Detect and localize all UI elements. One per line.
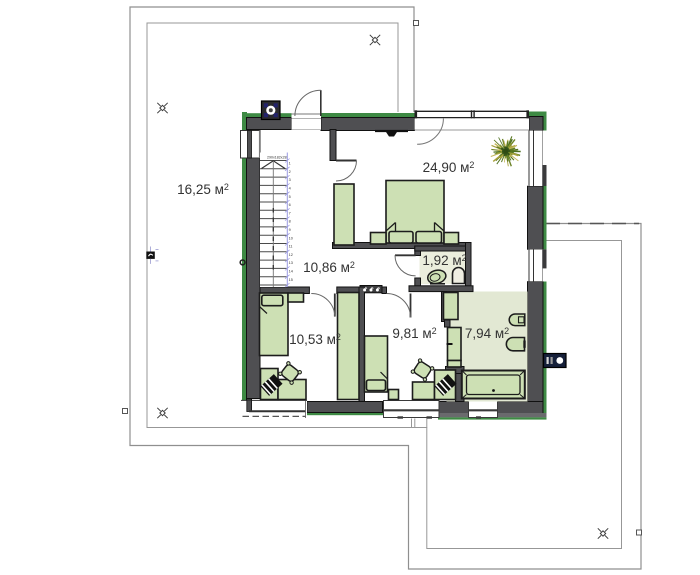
svg-text:8: 8 [289, 220, 291, 224]
svg-text:7,94 м2: 7,94 м2 [465, 326, 509, 341]
svg-text:1: 1 [289, 162, 291, 166]
svg-text:16,25 м2: 16,25 м2 [177, 182, 229, 197]
svg-text:9: 9 [289, 228, 291, 232]
svg-text:14: 14 [289, 270, 293, 274]
svg-text:4: 4 [289, 187, 291, 191]
svg-text:15: 15 [289, 278, 293, 282]
svg-text:10,86 м2: 10,86 м2 [303, 260, 355, 275]
svg-text:6: 6 [289, 203, 291, 207]
svg-text:1,92 м2: 1,92 м2 [422, 253, 466, 268]
svg-text:5: 5 [289, 195, 291, 199]
svg-text:7: 7 [289, 211, 291, 215]
svg-text:2: 2 [289, 170, 291, 174]
svg-text:9,81 м2: 9,81 м2 [392, 326, 436, 341]
svg-text:13: 13 [289, 261, 293, 265]
svg-text:10,53 м2: 10,53 м2 [289, 332, 341, 347]
svg-text:10: 10 [289, 236, 293, 240]
svg-text:12: 12 [289, 253, 293, 257]
svg-text:11: 11 [289, 245, 293, 249]
svg-text:24,90 м2: 24,90 м2 [423, 160, 475, 175]
svg-text:3: 3 [289, 178, 291, 182]
svg-text:290x182x28: 290x182x28 [267, 156, 287, 160]
